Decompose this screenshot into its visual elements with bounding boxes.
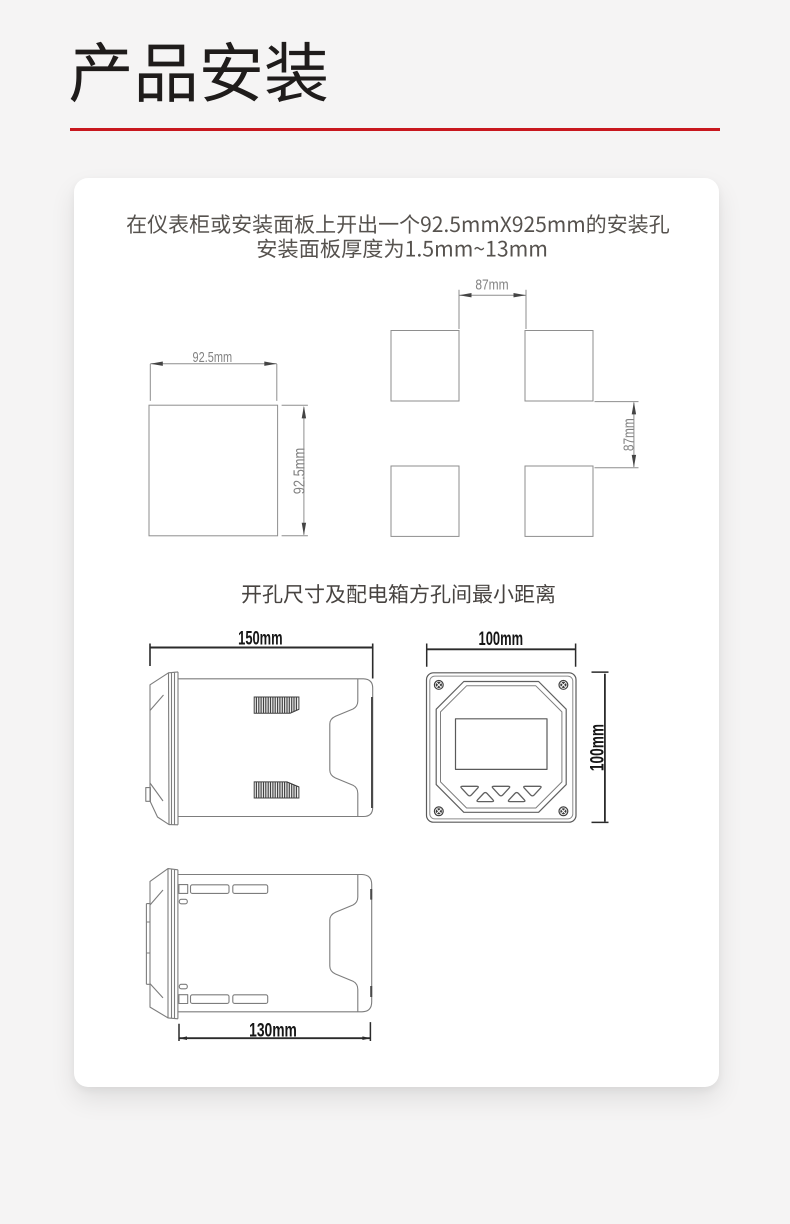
svg-text:100mm: 100mm xyxy=(586,724,608,771)
svg-text:92.5mm: 92.5mm xyxy=(291,448,308,494)
svg-text:150mm: 150mm xyxy=(238,628,283,649)
svg-text:100mm: 100mm xyxy=(479,628,524,649)
svg-text:130mm: 130mm xyxy=(249,1019,297,1041)
svg-text:92.5mm: 92.5mm xyxy=(193,348,233,365)
svg-text:87mm: 87mm xyxy=(620,418,637,451)
svg-text:87mm: 87mm xyxy=(475,276,508,293)
